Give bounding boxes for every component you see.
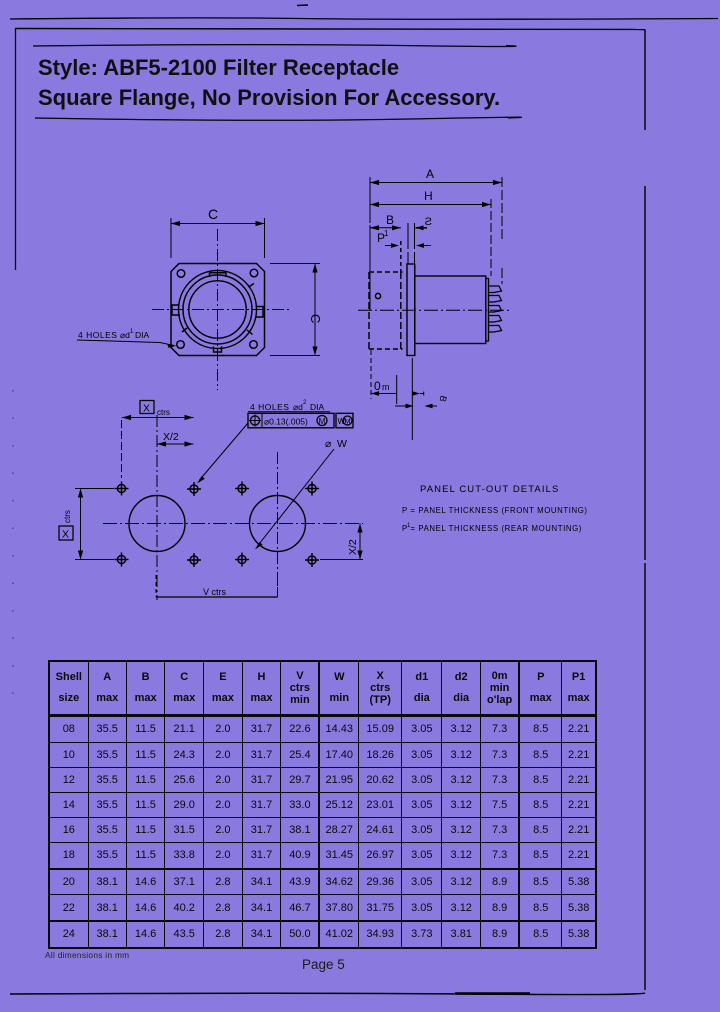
svg-text:4 HOLES: 4 HOLES <box>250 402 289 412</box>
svg-text:B: B <box>438 394 449 402</box>
svg-text:DIA: DIA <box>135 330 150 340</box>
svg-text:X: X <box>62 529 69 541</box>
svg-text:C: C <box>308 314 323 323</box>
svg-text:V ctrs: V ctrs <box>203 587 227 597</box>
svg-text:ctrs: ctrs <box>63 510 72 523</box>
svg-text:M: M <box>344 417 350 426</box>
svg-text:ctrs: ctrs <box>157 408 170 417</box>
svg-text:⌀d: ⌀d <box>293 402 303 412</box>
svg-text:DIA: DIA <box>310 402 325 412</box>
svg-text:C: C <box>208 206 218 222</box>
svg-text:A: A <box>426 167 434 181</box>
svg-text:B: B <box>386 213 394 227</box>
svg-text:4 HOLES: 4 HOLES <box>78 330 117 340</box>
svg-text:S: S <box>425 216 432 228</box>
svg-text:1: 1 <box>130 329 134 335</box>
svg-text:PANEL CUT-OUT DETAILS: PANEL CUT-OUT DETAILS <box>420 484 559 495</box>
svg-text:⌀: ⌀ <box>325 438 332 450</box>
svg-text:2: 2 <box>303 400 307 406</box>
svg-text:⌀d: ⌀d <box>120 330 130 340</box>
svg-text:P = PANEL THICKNESS (FRONT MO: P = PANEL THICKNESS (FRONT MOUNTING) <box>402 506 588 515</box>
svg-text:0: 0 <box>374 379 381 393</box>
svg-text:1: 1 <box>384 229 389 238</box>
svg-text:W: W <box>337 438 347 450</box>
svg-text:P = PANEL THICKNESS (REAR MOU: P = PANEL THICKNESS (REAR MOUNTING) <box>402 524 582 533</box>
svg-text:m: m <box>382 382 390 392</box>
svg-text:X/2: X/2 <box>347 539 359 555</box>
svg-text:H: H <box>424 189 433 203</box>
svg-text:M: M <box>319 417 326 426</box>
svg-text:⌀0.13(.005): ⌀0.13(.005) <box>264 417 308 427</box>
svg-text:X: X <box>143 403 150 415</box>
svg-text:X/2: X/2 <box>163 431 179 443</box>
